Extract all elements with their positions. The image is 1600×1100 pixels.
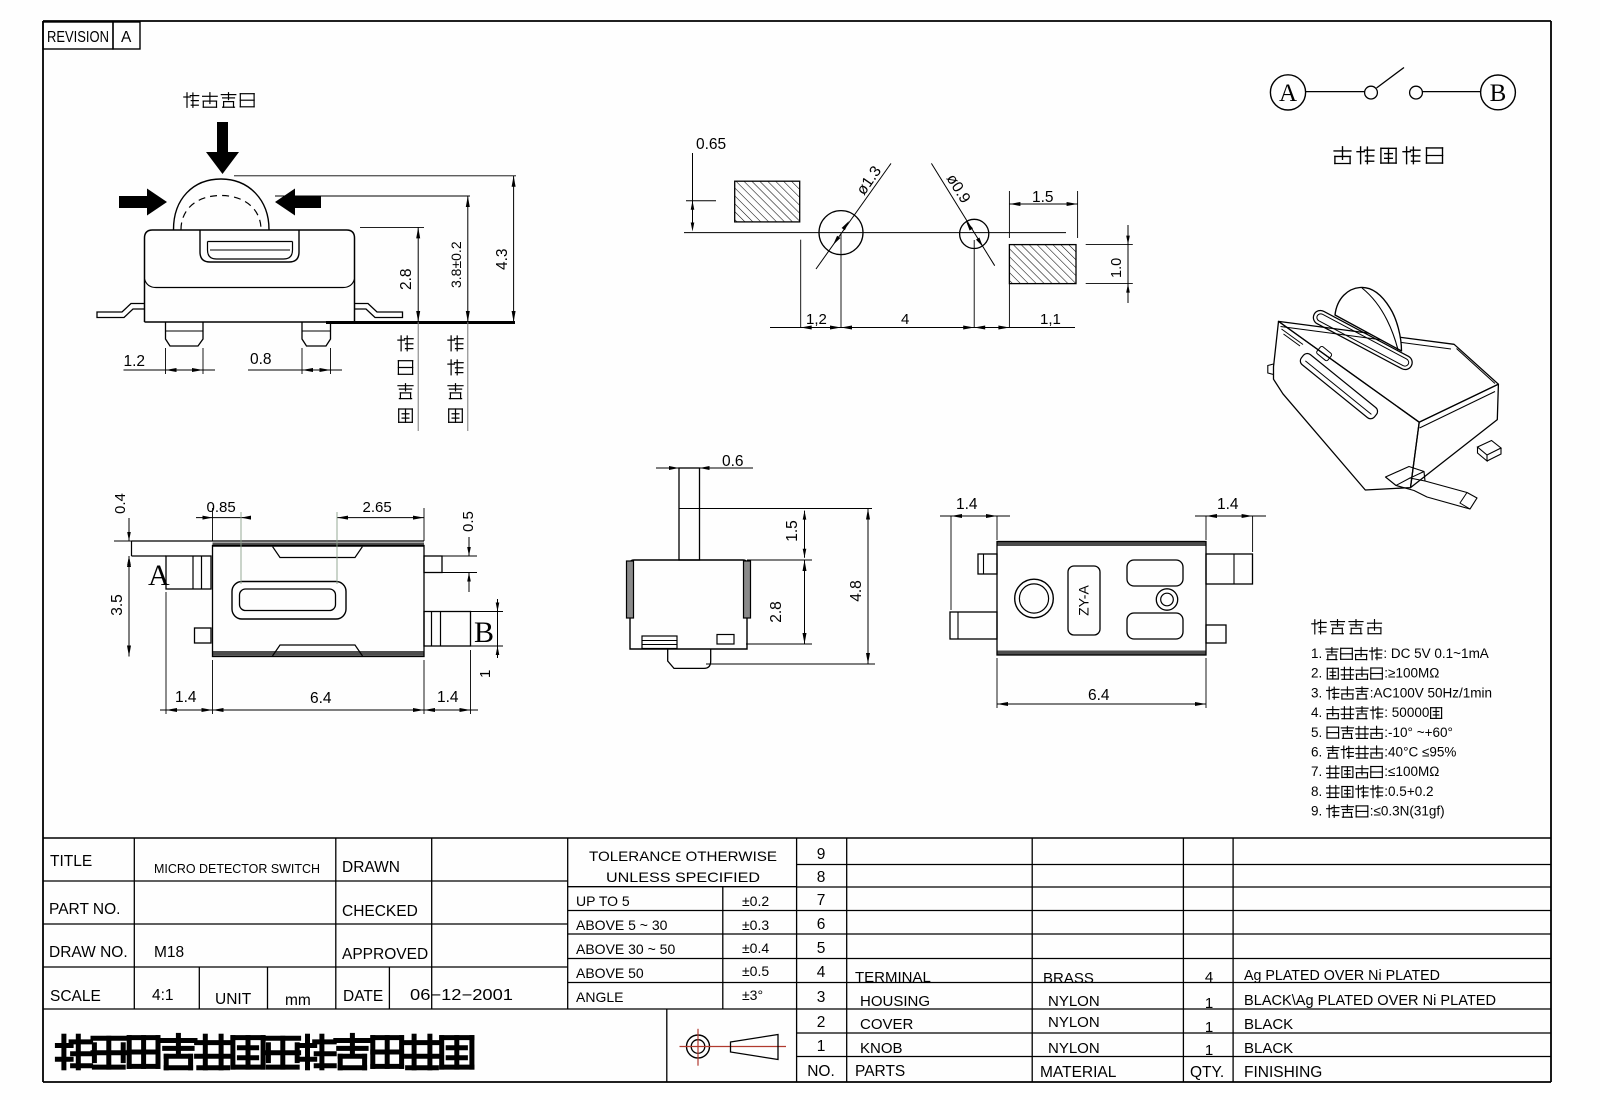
svg-text:6.: 6. <box>1311 745 1322 760</box>
svg-text:3.5: 3.5 <box>109 594 126 616</box>
svg-text:6.4: 6.4 <box>310 690 332 707</box>
svg-text:UP TO 5: UP TO 5 <box>576 893 630 909</box>
svg-text:2: 2 <box>817 1014 826 1031</box>
svg-text:COVER: COVER <box>860 1016 914 1033</box>
svg-text:1.4: 1.4 <box>956 496 978 513</box>
svg-text:KNOB: KNOB <box>860 1040 903 1057</box>
svg-text:0.8: 0.8 <box>250 351 272 368</box>
svg-text:1.2: 1.2 <box>124 353 146 370</box>
svg-text::≥100MΩ: :≥100MΩ <box>1384 666 1439 681</box>
svg-text::≤0.3N(31gf): :≤0.3N(31gf) <box>1370 804 1445 819</box>
svg-text:A: A <box>121 29 132 46</box>
svg-text:6.4: 6.4 <box>1088 687 1110 704</box>
svg-text:4:1: 4:1 <box>152 987 174 1004</box>
svg-text:4: 4 <box>901 311 909 328</box>
svg-text:1.: 1. <box>1311 646 1322 661</box>
svg-text:UNLESS SPECIFIED: UNLESS SPECIFIED <box>606 869 760 885</box>
svg-text:NYLON: NYLON <box>1048 1014 1100 1031</box>
svg-text:B: B <box>1490 80 1507 107</box>
svg-text:CHECKED: CHECKED <box>342 903 418 920</box>
svg-text:1.4: 1.4 <box>175 689 197 706</box>
svg-text:9: 9 <box>817 846 826 863</box>
svg-text:8: 8 <box>817 869 826 886</box>
svg-text:QTY.: QTY. <box>1190 1064 1224 1081</box>
svg-text::≤100MΩ: :≤100MΩ <box>1384 764 1439 779</box>
svg-text:TOLERANCE OTHERWISE: TOLERANCE OTHERWISE <box>589 848 777 864</box>
svg-text:APPROVED: APPROVED <box>342 946 428 963</box>
svg-text:4.: 4. <box>1311 705 1322 720</box>
svg-text:UNIT: UNIT <box>215 991 252 1008</box>
svg-text:A: A <box>1279 80 1297 107</box>
svg-text:1.0: 1.0 <box>1109 258 1125 278</box>
svg-text:Ag PLATED OVER Ni PLATED: Ag PLATED OVER Ni PLATED <box>1244 968 1440 984</box>
svg-text::0.5+0.2: :0.5+0.2 <box>1384 784 1433 799</box>
svg-text:: 50000: : 50000 <box>1384 705 1429 720</box>
svg-text:NYLON: NYLON <box>1048 993 1100 1010</box>
svg-text:ABOVE 5 ~ 30: ABOVE 5 ~ 30 <box>576 917 668 933</box>
svg-text:1.4: 1.4 <box>437 689 459 706</box>
svg-text:8.: 8. <box>1311 784 1322 799</box>
svg-text:2.: 2. <box>1311 666 1322 681</box>
svg-text:M18: M18 <box>154 944 184 961</box>
svg-text:BLACK: BLACK <box>1244 1016 1293 1033</box>
svg-text:1,1: 1,1 <box>1040 311 1061 328</box>
svg-text:3: 3 <box>817 989 826 1006</box>
svg-text:DRAW NO.: DRAW NO. <box>49 944 128 961</box>
svg-text:MATERIAL: MATERIAL <box>1040 1064 1117 1081</box>
svg-text:mm: mm <box>285 992 311 1009</box>
svg-text:ANGLE: ANGLE <box>576 989 623 1005</box>
svg-text:BLACK\Ag PLATED OVER Ni PL: BLACK\Ag PLATED OVER Ni PLATED <box>1244 993 1496 1009</box>
svg-text::-10° ~+60°: :-10° ~+60° <box>1384 725 1453 740</box>
svg-text:: DC 5V 0.1~1mA: : DC 5V 0.1~1mA <box>1383 646 1488 661</box>
svg-text:1: 1 <box>817 1038 826 1055</box>
svg-text:2.8: 2.8 <box>398 268 415 290</box>
svg-text:4: 4 <box>817 964 826 981</box>
svg-text:HOUSING: HOUSING <box>860 993 930 1010</box>
svg-text:1: 1 <box>1205 1019 1213 1036</box>
svg-text:NYLON: NYLON <box>1048 1040 1100 1057</box>
svg-text:3.8±0.2: 3.8±0.2 <box>448 241 464 288</box>
svg-text:NO.: NO. <box>807 1063 835 1080</box>
svg-text:0.65: 0.65 <box>696 136 726 153</box>
svg-text:1.4: 1.4 <box>1217 496 1239 513</box>
svg-text:B: B <box>474 616 494 649</box>
svg-text:0.4: 0.4 <box>112 493 129 514</box>
svg-text:1: 1 <box>1205 995 1213 1012</box>
svg-text:1: 1 <box>477 670 494 678</box>
svg-text:0.5: 0.5 <box>460 511 477 532</box>
svg-text:7.: 7. <box>1311 764 1322 779</box>
svg-text:±0.4: ±0.4 <box>742 940 769 956</box>
svg-text:4: 4 <box>1205 969 1213 986</box>
svg-text:06−12−2001: 06−12−2001 <box>410 987 513 1004</box>
svg-text:PARTS: PARTS <box>855 1063 905 1080</box>
svg-text:DATE: DATE <box>343 988 383 1005</box>
svg-text:BRASS: BRASS <box>1043 970 1094 987</box>
svg-text:±0.2: ±0.2 <box>742 893 769 909</box>
svg-text:6: 6 <box>817 916 826 933</box>
svg-text:5.: 5. <box>1311 725 1322 740</box>
svg-text:±0.3: ±0.3 <box>742 917 769 933</box>
svg-text:ABOVE 50: ABOVE 50 <box>576 965 644 981</box>
svg-text:MICRO DETECTOR SWITCH: MICRO DETECTOR SWITCH <box>154 861 320 876</box>
svg-text::40°C ≤95%: :40°C ≤95% <box>1384 745 1456 760</box>
svg-text:A: A <box>148 559 170 592</box>
svg-text:0.6: 0.6 <box>722 453 744 470</box>
svg-text:4.3: 4.3 <box>494 248 511 270</box>
svg-text:BLACK: BLACK <box>1244 1040 1293 1057</box>
svg-text:1.5: 1.5 <box>784 520 801 542</box>
svg-text:1.5: 1.5 <box>1032 189 1054 206</box>
svg-text:5: 5 <box>817 940 826 957</box>
svg-text:±0.5: ±0.5 <box>742 963 769 979</box>
svg-text:7: 7 <box>817 892 826 909</box>
svg-text:9.: 9. <box>1311 804 1322 819</box>
svg-text:ZY-A: ZY-A <box>1076 585 1092 616</box>
svg-text:1,2: 1,2 <box>806 311 827 328</box>
svg-text:REVISION: REVISION <box>47 29 109 46</box>
svg-text:ABOVE 30 ~ 50: ABOVE 30 ~ 50 <box>576 941 675 957</box>
svg-text:0.85: 0.85 <box>207 499 236 516</box>
svg-text:SCALE: SCALE <box>50 988 101 1005</box>
svg-text:TERMINAL: TERMINAL <box>855 969 931 986</box>
svg-text::AC100V 50Hz/1min: :AC100V 50Hz/1min <box>1370 685 1492 700</box>
svg-text:2.8: 2.8 <box>768 601 785 623</box>
svg-text:PART NO.: PART NO. <box>49 901 121 918</box>
svg-text:2.65: 2.65 <box>363 499 392 516</box>
svg-text:±3°: ±3° <box>742 987 763 1003</box>
svg-text:4.8: 4.8 <box>848 580 865 602</box>
svg-text:1: 1 <box>1205 1042 1213 1059</box>
svg-text:TITLE: TITLE <box>50 853 92 870</box>
svg-text:FINISHING: FINISHING <box>1244 1064 1322 1081</box>
svg-text:3.: 3. <box>1311 685 1322 700</box>
svg-text:DRAWN: DRAWN <box>342 859 400 876</box>
